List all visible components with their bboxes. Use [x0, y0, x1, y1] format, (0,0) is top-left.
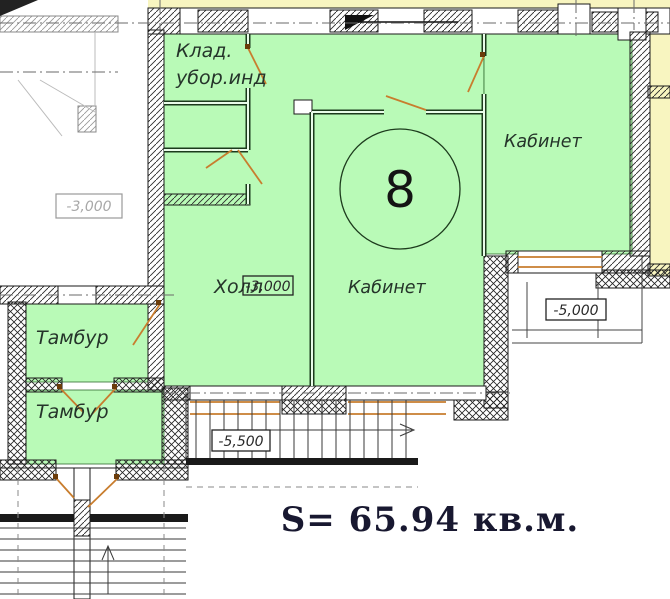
- wall-stub: [114, 378, 164, 392]
- hinge: [480, 52, 485, 57]
- elevation-stairs: -5,500: [212, 430, 270, 451]
- hinge: [53, 474, 58, 479]
- wall-pier: [424, 10, 472, 32]
- exterior-wall: [162, 388, 188, 464]
- room-label-ubor: убор.инд: [175, 67, 267, 89]
- party-wall-left: [148, 30, 164, 390]
- stair-wall-pier: [74, 500, 90, 536]
- exterior-wall-vertical: [484, 256, 508, 408]
- left-unit-wall: [0, 16, 118, 32]
- column: [558, 4, 590, 34]
- room-label-tambur-lower: Тамбур: [36, 401, 109, 423]
- landing-edge: [186, 458, 418, 465]
- room-label-kabinet-center: Кабинет: [348, 278, 427, 298]
- adjacent-unit-right: [650, 28, 670, 276]
- wall-pier: [96, 286, 164, 304]
- elevation-stairs-value: -5,500: [218, 434, 263, 450]
- hinge: [245, 44, 250, 49]
- floor-plan-page: 8 Клад. убор.инд Кабинет Кабинет Холл Та…: [0, 0, 670, 599]
- wall-pier: [198, 10, 248, 32]
- exterior-wall-right: [630, 32, 650, 256]
- left-unit-pier: [78, 106, 96, 132]
- hinge: [114, 474, 119, 479]
- wall-stub: [0, 460, 56, 480]
- closet-bottom-wall: [164, 194, 250, 205]
- apartment-number: 8: [384, 161, 416, 219]
- elevation-terrace-value: -5,000: [553, 303, 598, 319]
- elevation-holl: -3,000: [243, 276, 293, 295]
- room-label-kabinet-right: Кабинет: [504, 132, 583, 152]
- elevation-holl-value: -3,000: [245, 279, 290, 295]
- landing-edge: [0, 514, 188, 522]
- wall-stub: [648, 86, 670, 98]
- wall-pier: [518, 10, 558, 32]
- corridor-column: [294, 100, 312, 114]
- area-label: S= 65.94 кв.м.: [281, 500, 580, 540]
- hinge: [156, 300, 161, 305]
- exterior-wall-left: [8, 302, 26, 464]
- room-label-klad: Клад.: [176, 40, 232, 62]
- elevation-terrace: -5,000: [546, 299, 606, 320]
- hinge: [112, 384, 117, 389]
- floor-plan-canvas: 8 Клад. убор.инд Кабинет Кабинет Холл Та…: [0, 0, 670, 599]
- elevation-left-unit-value: -3,000: [66, 199, 111, 215]
- wall-stub: [26, 378, 62, 392]
- window-opening: [518, 251, 602, 273]
- room-label-tambur-upper: Тамбур: [36, 327, 109, 349]
- hinge: [57, 384, 62, 389]
- elevation-left-unit: -3,000: [56, 194, 122, 218]
